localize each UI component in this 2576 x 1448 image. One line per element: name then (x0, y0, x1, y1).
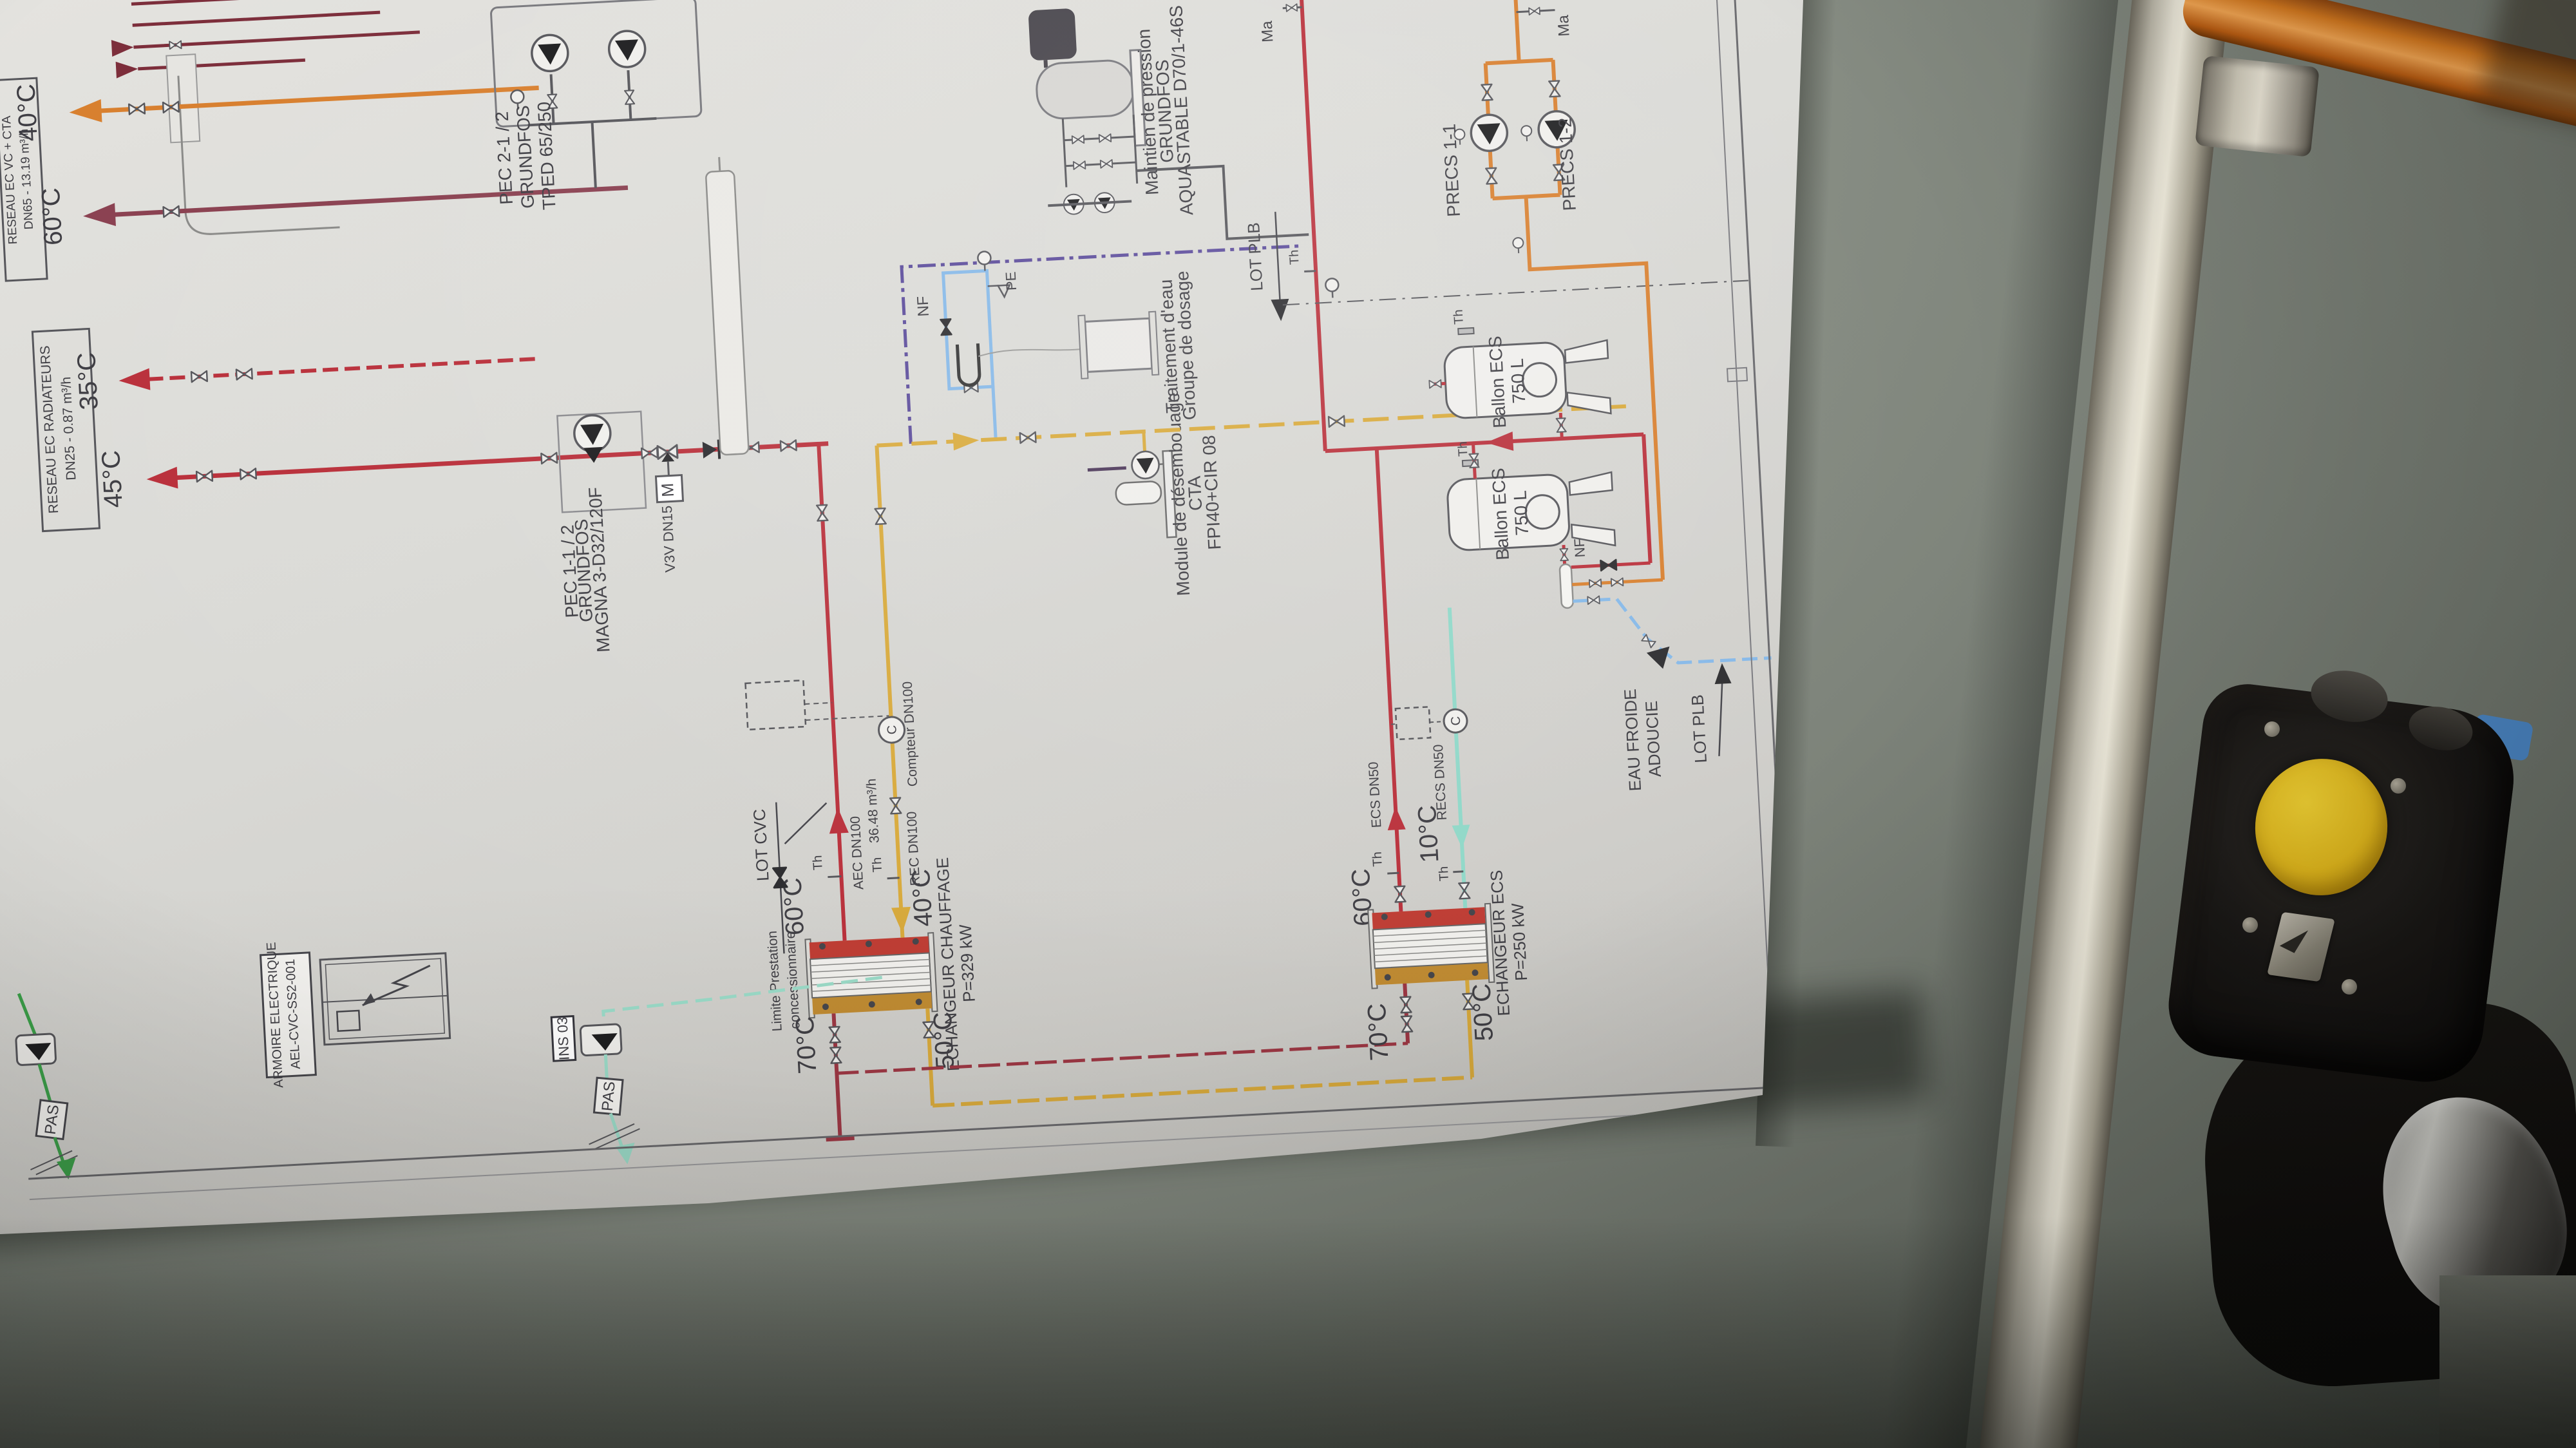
brand-logo-icon (2280, 923, 2308, 953)
gauge-icon (1325, 278, 1340, 298)
tank-label: 750 L (1510, 490, 1532, 537)
storage-tank-2: Th Ballon ECS 750 L (1444, 433, 1618, 614)
line-tag: RECS DN50 (1431, 744, 1450, 821)
network-label: DN65 - 13.19 m³/h (17, 129, 36, 230)
gauge-icon (978, 251, 992, 271)
sleeve-label: Ma (1555, 14, 1573, 37)
valve-state-label: NF (1571, 538, 1588, 558)
boundary-lot-plb-2: LOT PLB (1686, 663, 1736, 764)
tag-label: PAS (42, 1104, 62, 1136)
pipe-coupling (2195, 55, 2320, 157)
pump-icon (573, 414, 611, 452)
screw-icon (2391, 778, 2406, 794)
meter-icon-label: C (885, 725, 900, 735)
sensor-label: Th (1437, 866, 1452, 881)
boundary-label: LOT PLB (1687, 694, 1710, 764)
pump-label: MAGNA 3-D32/120F (585, 486, 613, 653)
supply-label: ADOUCIE (1642, 700, 1665, 777)
sleeve-label: Ma (1258, 20, 1277, 43)
boundary-label: Limite Prestation (765, 930, 785, 1031)
temp-label: 50°C (1467, 983, 1499, 1042)
exchanger-ecs-bottom-ports: 70°C 50°C (1361, 979, 1501, 1083)
schematic-sheet: RESEAU EC VC + CTA DN65 - 13.19 m³/h 40°… (0, 0, 1816, 1262)
valve-v3v: M V3V DN15 (654, 445, 687, 573)
fill-loop: NF PE (912, 247, 1089, 442)
pipe-rad-35: 35°C (72, 329, 542, 410)
bottom-right-equipment (2439, 1275, 2576, 1448)
boundary-label: LOT CVC (750, 808, 773, 882)
sensor-label: Th (1287, 249, 1302, 265)
screw-icon (2342, 979, 2357, 995)
pipe-ecs-red: ECS DN50 Th 60°C (1325, 448, 1411, 927)
temp-label: 70°C (791, 1016, 822, 1075)
line-tag: REC DN100 (904, 811, 923, 886)
exchanger-chauffage-bottom-ports: 70°C 50°C (791, 1007, 963, 1141)
equipment-label: P=329 kW (956, 924, 979, 1003)
drain-green-pas: PAS (14, 991, 79, 1181)
meter-icon-label: C (1449, 716, 1464, 726)
desludging-module: Module de désembouage CTA FPI40+CIR 08 (1084, 390, 1227, 600)
line-tag: AEC DN100 (848, 815, 867, 890)
equipment-label: P=250 kW (1508, 902, 1531, 982)
sensor-label: Th (811, 855, 826, 870)
line-tag: ECS DN50 (1366, 761, 1384, 828)
pump-icon (531, 34, 569, 72)
flow-label: 36.48 m³/h (864, 778, 882, 843)
screw-icon (2264, 721, 2280, 737)
boundary-lot-plb-1: LOT PLB (1243, 187, 1749, 323)
boundary-label: LOT PLB (1244, 222, 1267, 292)
equipment-label: FPI40+CIR 08 (1198, 435, 1224, 551)
pump-icon (1132, 451, 1160, 479)
valve-label: V3V DN15 (659, 505, 678, 573)
temp-label: 50°C (929, 1011, 960, 1071)
pump-icon (608, 30, 646, 68)
sensor-label: Th (870, 857, 885, 872)
temp-label: 35°C (72, 352, 104, 411)
pipe-ecvc-40: 40°C (12, 57, 540, 142)
temp-label: 60°C (37, 187, 68, 246)
sensor-label: Th (1455, 441, 1470, 457)
boundary-label: concessionnaire (783, 931, 803, 1029)
pump-group-pec2: PEC 2-1 / 2 GRUNDFOS TPED 65/250 (486, 0, 706, 213)
drain-label: PE (1003, 271, 1020, 291)
electrical-cabinet: ARMOIRE ELECTRIQUE AEL-CVC-SS2-001 (260, 933, 452, 1088)
sensor-label: Th (1452, 309, 1466, 325)
decoupling-bottle (705, 157, 749, 455)
pipe-production-red: Th Ma (1254, 0, 1347, 453)
network-lines-top-left (109, 0, 430, 239)
pump-label: PRECS 1-2 (1555, 117, 1580, 211)
temp-label: 45°C (97, 450, 128, 509)
motor-actuator-label: M (658, 482, 677, 497)
tag-label: INS 03 (554, 1016, 572, 1060)
schematic-svg: RESEAU EC VC + CTA DN65 - 13.19 m³/h 40°… (0, 0, 1816, 1262)
valve-state-label: NF (914, 296, 933, 317)
heat-exchanger-ecs: ECHANGEUR ECS P=250 kW (1367, 868, 1533, 1022)
tank-label: 750 L (1507, 358, 1529, 405)
gauge-icon (1521, 126, 1532, 142)
tag-label: PAS (599, 1081, 619, 1112)
temp-label: 40°C (12, 83, 43, 142)
meter-label: Compteur DN100 (900, 681, 921, 786)
screw-icon (2242, 917, 2258, 933)
pump-icon (1470, 114, 1508, 152)
temp-label: 70°C (1363, 1002, 1394, 1062)
corner-shadow (2479, 0, 2576, 139)
sensor-label: Th (1370, 852, 1385, 867)
storage-tank-1: Th Ballon ECS 750 L (1426, 302, 1613, 446)
gauge-icon (1513, 238, 1524, 254)
photo-scene: RESEAU EC VC + CTA DN65 - 13.19 m³/h 40°… (0, 0, 2576, 1448)
